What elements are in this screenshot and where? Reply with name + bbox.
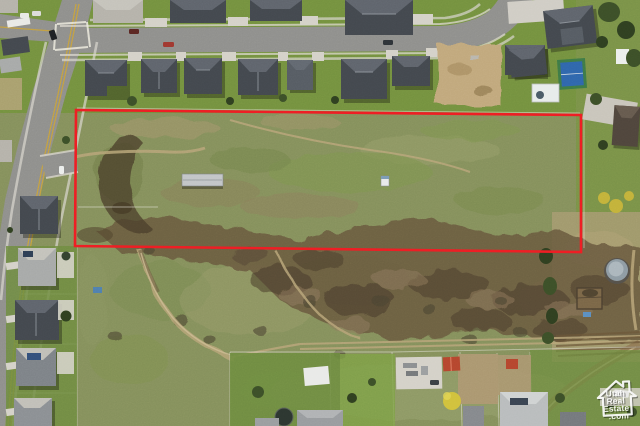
- photo-grain: [0, 0, 640, 426]
- aerial-photo: Utah Real Estate .com Utah Real Estate .…: [0, 0, 640, 426]
- aerial-photo-canvas: Utah Real Estate .com Utah Real Estate .…: [0, 0, 640, 426]
